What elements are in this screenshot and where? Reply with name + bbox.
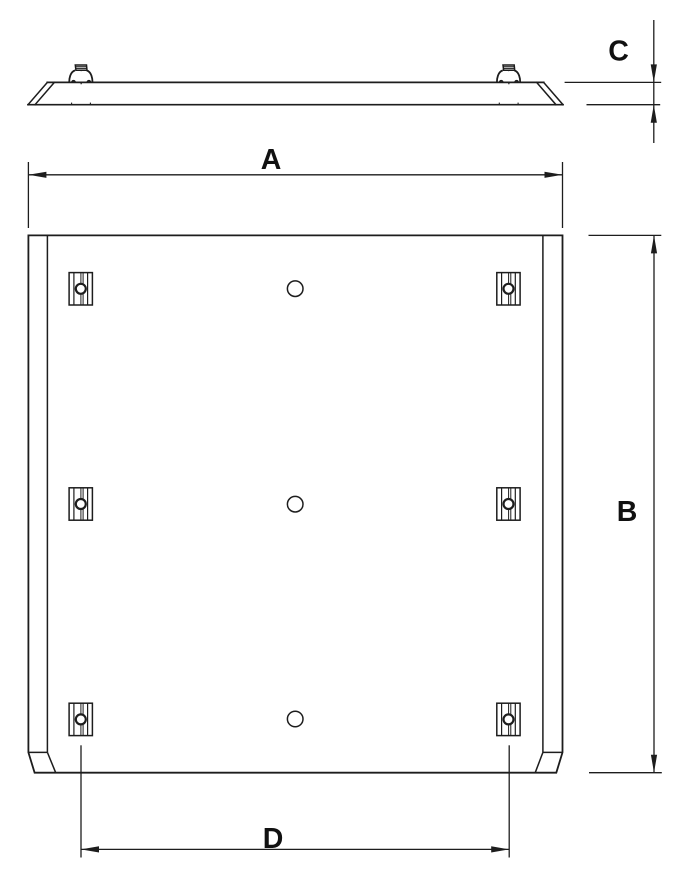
svg-text:A: A bbox=[261, 144, 282, 176]
svg-text:B: B bbox=[617, 496, 638, 528]
svg-text:C: C bbox=[608, 36, 629, 68]
svg-text:D: D bbox=[263, 823, 284, 855]
